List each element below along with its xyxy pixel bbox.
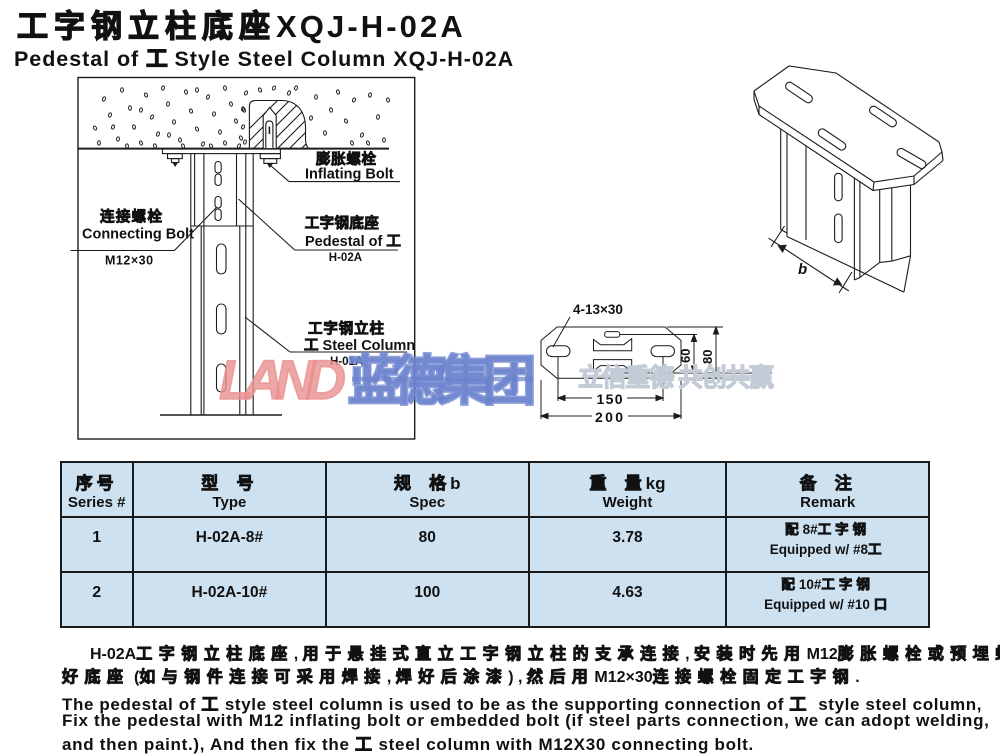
svg-text:膨胀螺栓: 膨胀螺栓 xyxy=(316,150,377,168)
svg-text:150: 150 xyxy=(597,391,623,407)
svg-text:H-02A: H-02A xyxy=(329,252,362,264)
svg-text:Pedestal of 工: Pedestal of 工 xyxy=(305,234,401,250)
svg-text:连接螺栓: 连接螺栓 xyxy=(100,208,163,226)
svg-text:工字钢立柱: 工字钢立柱 xyxy=(308,320,385,338)
svg-text:Connecting Bolt: Connecting Bolt xyxy=(82,227,194,243)
svg-text:工字钢底座: 工字钢底座 xyxy=(305,214,380,232)
svg-text:M12×30: M12×30 xyxy=(105,254,154,268)
svg-text:b: b xyxy=(798,261,807,278)
svg-text:4-13×30: 4-13×30 xyxy=(573,302,623,317)
svg-text:蓝德集团: 蓝德集团 xyxy=(348,352,536,411)
svg-text:60: 60 xyxy=(678,349,693,363)
svg-text:立信重德 共创共赢: 立信重德 共创共赢 xyxy=(578,363,774,392)
svg-text:Inflating Bolt: Inflating Bolt xyxy=(305,167,394,183)
svg-text:200: 200 xyxy=(595,409,623,425)
svg-text:LAND: LAND xyxy=(219,348,345,411)
svg-text:80: 80 xyxy=(700,350,715,364)
